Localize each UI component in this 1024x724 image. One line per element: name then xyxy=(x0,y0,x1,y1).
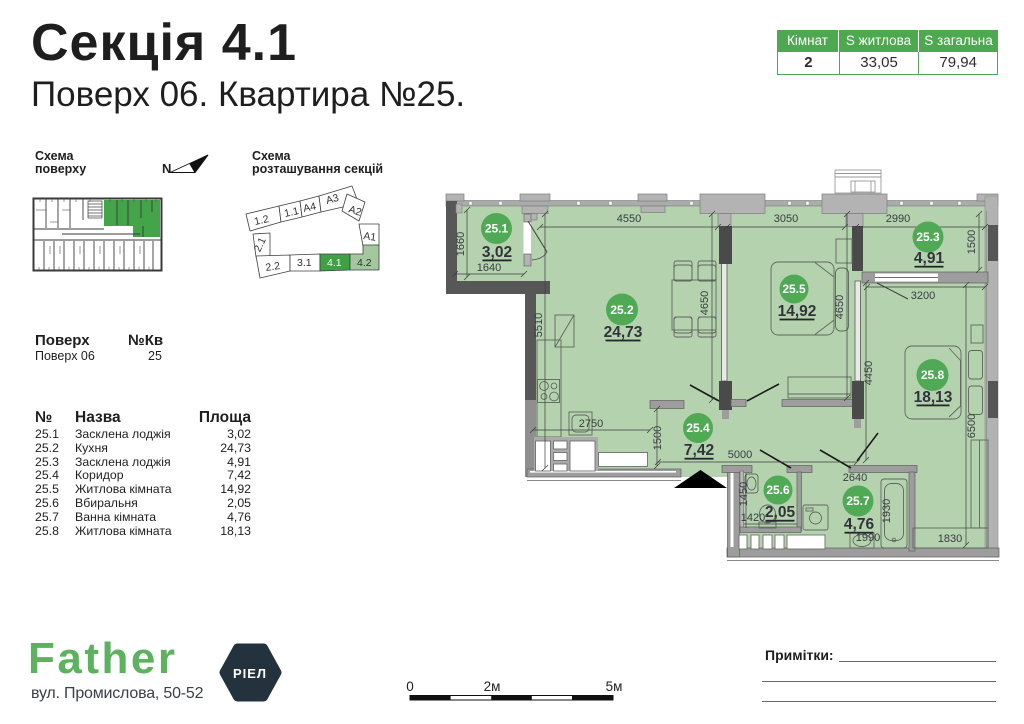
svg-text:25.4: 25.4 xyxy=(686,421,710,435)
svg-text:A1: A1 xyxy=(363,230,378,244)
svg-text:3050: 3050 xyxy=(774,213,798,225)
svg-text:4450: 4450 xyxy=(863,361,875,385)
svg-text:2990: 2990 xyxy=(886,213,910,225)
svg-text:1640: 1640 xyxy=(477,262,501,274)
svg-text:2750: 2750 xyxy=(579,418,603,430)
svg-text:3,02: 3,02 xyxy=(482,244,512,261)
svg-text:2,05: 2,05 xyxy=(765,504,796,521)
svg-text:2640: 2640 xyxy=(843,472,867,484)
svg-text:2м: 2м xyxy=(484,679,501,694)
svg-text:6500: 6500 xyxy=(966,414,978,438)
svg-text:18,13: 18,13 xyxy=(914,389,953,406)
svg-text:1500: 1500 xyxy=(966,230,978,254)
svg-text:25.3: 25.3 xyxy=(916,230,940,244)
svg-text:25.2: 25.2 xyxy=(610,303,634,317)
svg-text:4,91: 4,91 xyxy=(914,250,945,267)
svg-text:5510: 5510 xyxy=(533,313,545,337)
svg-text:2.2: 2.2 xyxy=(265,260,281,274)
svg-text:1660: 1660 xyxy=(455,232,467,256)
svg-text:4,76: 4,76 xyxy=(844,516,875,533)
svg-text:1500: 1500 xyxy=(652,426,664,450)
svg-text:25.6: 25.6 xyxy=(766,483,790,497)
svg-text:25.8: 25.8 xyxy=(921,368,945,382)
svg-text:1420: 1420 xyxy=(741,512,765,524)
svg-text:4650: 4650 xyxy=(699,291,711,315)
svg-text:25.7: 25.7 xyxy=(846,494,870,508)
svg-text:4650: 4650 xyxy=(834,295,846,319)
svg-text:25.1: 25.1 xyxy=(485,222,509,236)
svg-text:3200: 3200 xyxy=(911,290,935,302)
svg-text:1830: 1830 xyxy=(938,533,962,545)
svg-text:4.2: 4.2 xyxy=(357,257,372,269)
svg-text:1990: 1990 xyxy=(856,532,880,544)
svg-text:14,92: 14,92 xyxy=(778,303,817,320)
svg-text:РІЕЛ: РІЕЛ xyxy=(233,666,267,681)
svg-text:1450: 1450 xyxy=(738,482,750,506)
svg-text:25.5: 25.5 xyxy=(782,282,806,296)
svg-text:3.1: 3.1 xyxy=(297,257,312,269)
svg-text:7,42: 7,42 xyxy=(684,442,714,459)
svg-text:4550: 4550 xyxy=(617,213,641,225)
svg-text:5м: 5м xyxy=(606,679,623,694)
svg-text:24,73: 24,73 xyxy=(604,324,643,341)
svg-text:4.1: 4.1 xyxy=(327,257,342,269)
svg-text:5000: 5000 xyxy=(728,449,752,461)
svg-text:1930: 1930 xyxy=(881,499,893,523)
svg-text:0: 0 xyxy=(406,679,414,694)
